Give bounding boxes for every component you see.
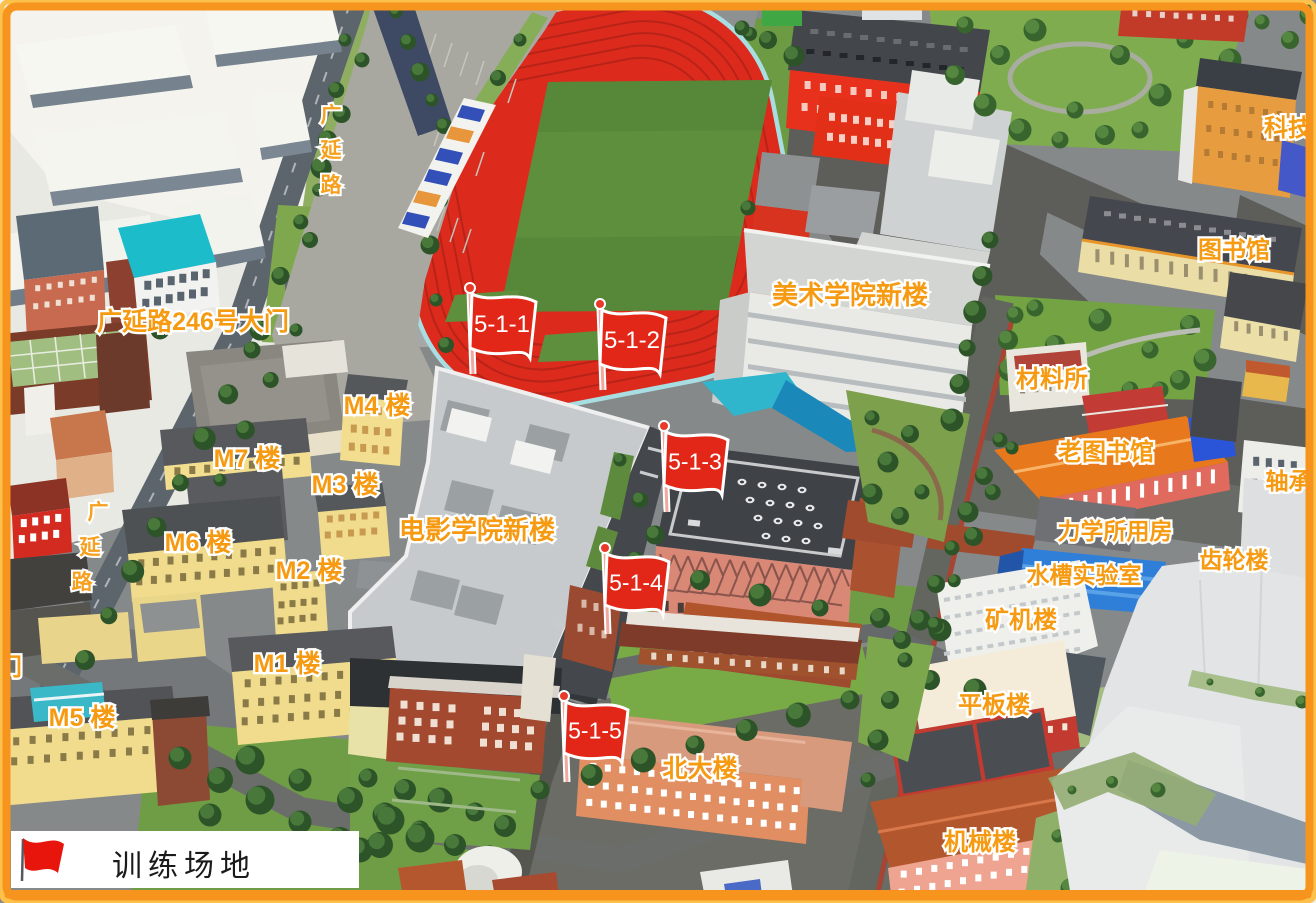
svg-text:电影学院新楼: 电影学院新楼 (399, 515, 555, 545)
svg-text:力学所用房: 力学所用房 (1058, 518, 1173, 544)
svg-text:北大楼: 北大楼 (662, 755, 737, 783)
svg-text:延: 延 (79, 536, 102, 559)
svg-text:5-1-5: 5-1-5 (568, 718, 622, 744)
svg-text:延: 延 (320, 139, 343, 162)
svg-text:5-1-4: 5-1-4 (609, 570, 663, 596)
svg-text:M7 楼: M7 楼 (214, 445, 281, 473)
svg-text:齿轮楼: 齿轮楼 (1200, 547, 1269, 573)
svg-text:广: 广 (88, 500, 109, 524)
svg-text:M3 楼: M3 楼 (312, 471, 379, 499)
svg-text:材料所: 材料所 (1016, 366, 1088, 393)
svg-text:M1 楼: M1 楼 (254, 650, 321, 678)
svg-text:5-1-3: 5-1-3 (668, 449, 722, 475)
svg-text:老图书馆: 老图书馆 (1058, 438, 1154, 466)
svg-text:平板楼: 平板楼 (958, 692, 1030, 719)
svg-text:图书馆: 图书馆 (1198, 236, 1270, 264)
svg-text:M6 楼: M6 楼 (165, 529, 232, 557)
svg-text:M5 楼: M5 楼 (49, 704, 116, 732)
svg-text:5-1-1: 5-1-1 (474, 311, 530, 338)
svg-text:M4 楼: M4 楼 (344, 392, 411, 420)
svg-text:路: 路 (72, 570, 94, 594)
svg-text:美术学院新楼: 美术学院新楼 (772, 280, 928, 310)
svg-text:M2 楼: M2 楼 (276, 557, 343, 585)
svg-text:水槽实验室: 水槽实验室 (1027, 562, 1142, 588)
svg-text:5-1-2: 5-1-2 (604, 327, 660, 354)
svg-text:机械楼: 机械楼 (944, 829, 1016, 856)
svg-text:矿机楼: 矿机楼 (985, 606, 1057, 634)
svg-text:广: 广 (321, 103, 342, 127)
svg-text:训练场地: 训练场地 (112, 850, 256, 883)
svg-text:路: 路 (321, 173, 343, 197)
svg-text:广延路246号大门: 广延路246号大门 (97, 307, 289, 336)
